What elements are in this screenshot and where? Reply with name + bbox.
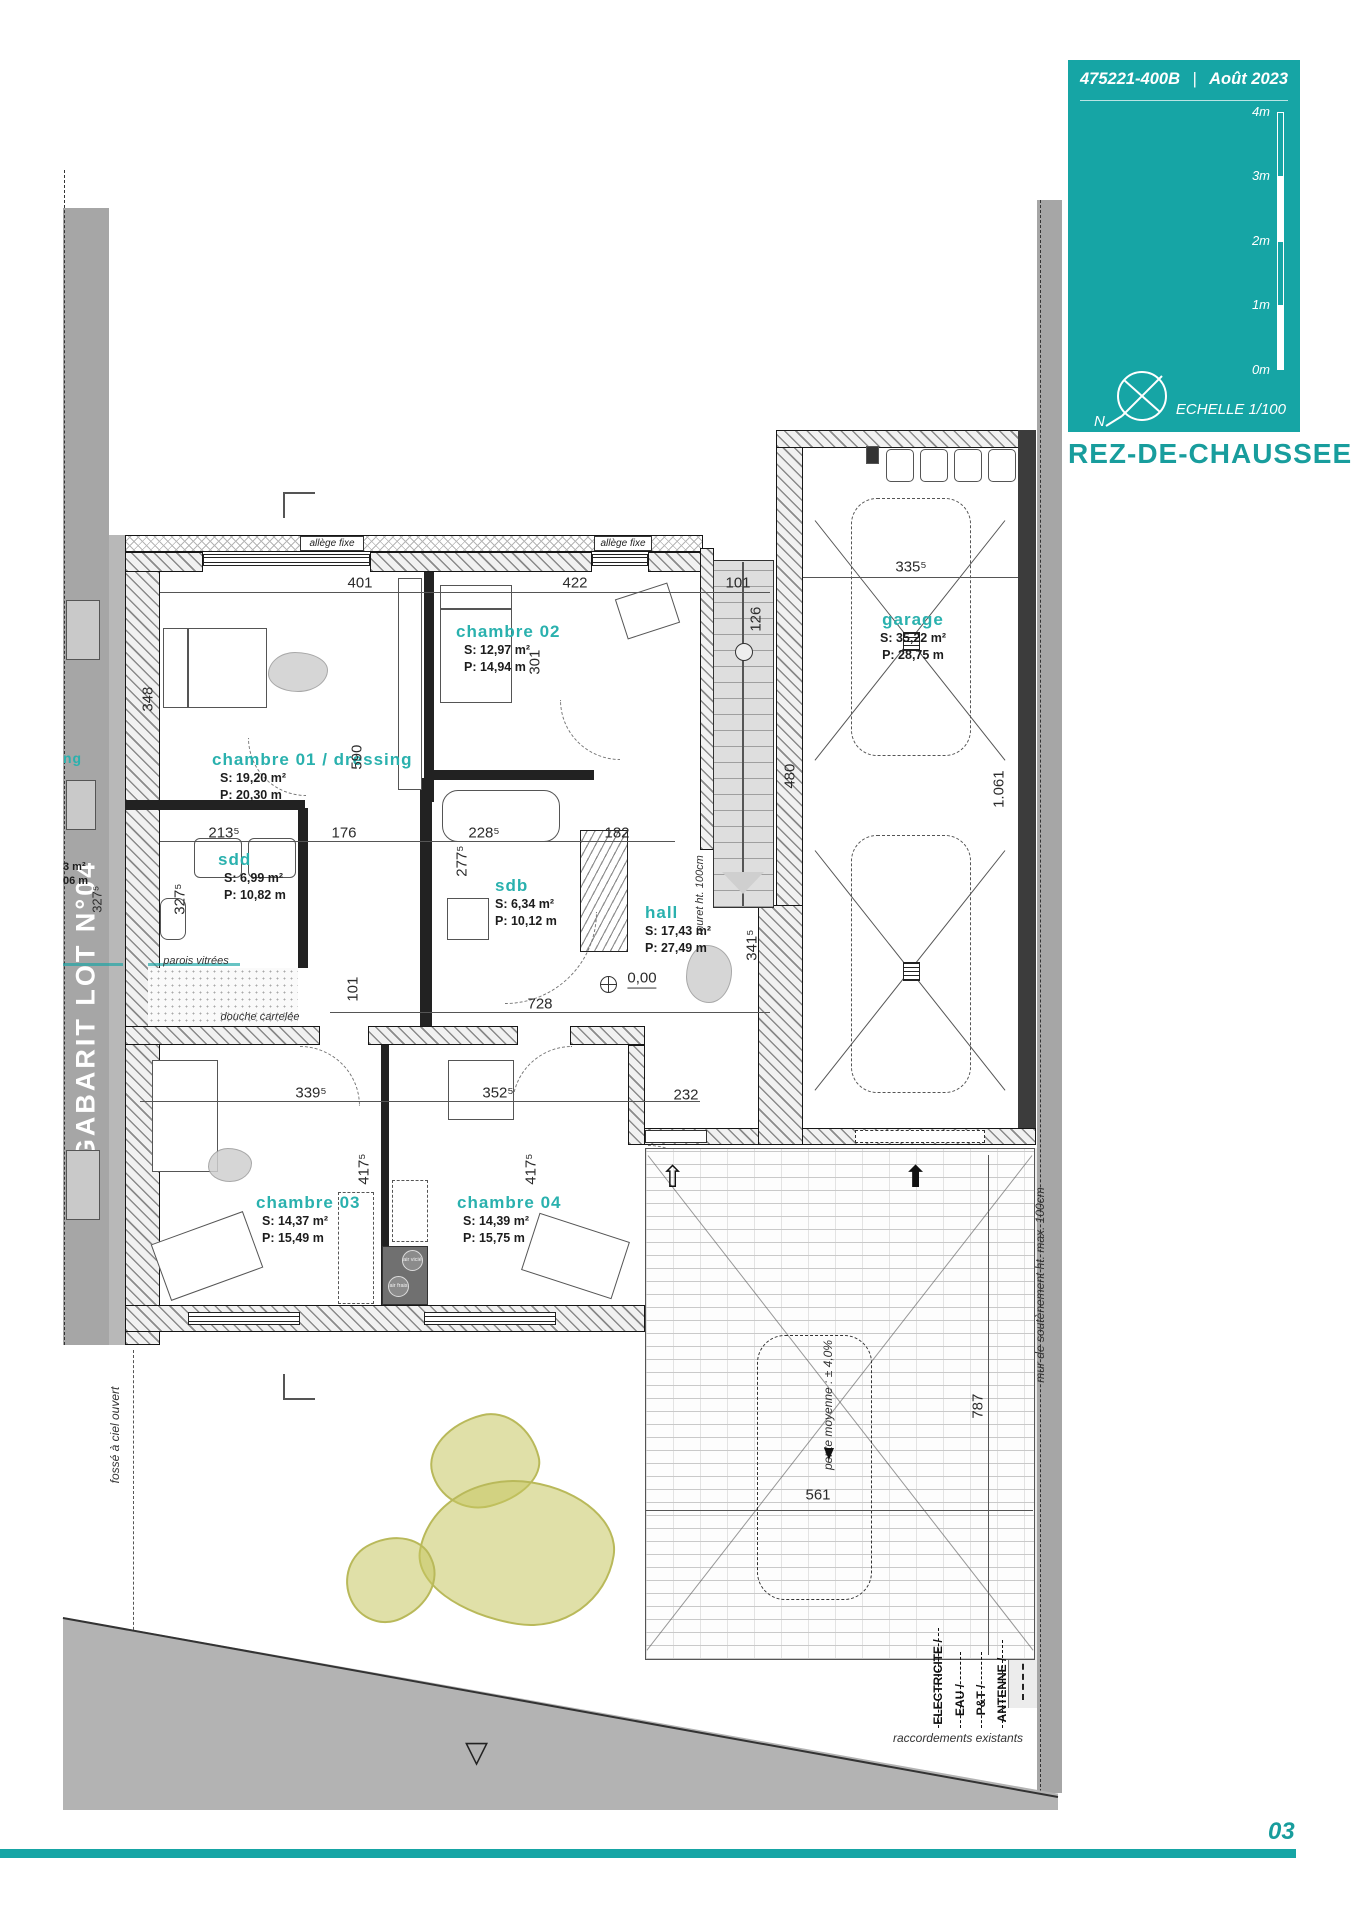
dim-232: 232 bbox=[673, 1087, 698, 1104]
header-separator: | bbox=[1192, 70, 1196, 89]
survey-mark bbox=[283, 492, 315, 494]
panel-header: 475221-400B | Août 2023 bbox=[1080, 70, 1288, 89]
doc-reference: 475221-400B bbox=[1080, 70, 1180, 89]
room-label-garage: garage S: 35,22 m² P: 28,75 m bbox=[880, 610, 946, 664]
bed-ch02-pillow-line bbox=[441, 608, 511, 610]
party-wall-left bbox=[125, 535, 160, 1345]
dim-1061: 1.061 bbox=[991, 770, 1008, 808]
room-perimeter: P: 15,49 m bbox=[256, 1230, 361, 1247]
person-figure-ch01 bbox=[268, 652, 328, 692]
garden-dash-line bbox=[133, 1350, 134, 1640]
entry-door-opening bbox=[645, 1130, 707, 1143]
svg-text:N: N bbox=[1094, 413, 1105, 430]
north-arrow-icon: N bbox=[1090, 360, 1180, 430]
title-panel: 475221-400B | Août 2023 4m 3m 2m 1m 0m N… bbox=[1068, 60, 1300, 432]
fosse-left-label: fossé à ciel ouvert bbox=[108, 1387, 122, 1484]
wall-hall-garage-low bbox=[758, 905, 803, 1145]
bed-ch03 bbox=[152, 1060, 218, 1172]
staircase-arrow bbox=[722, 872, 764, 894]
room-surface: S: 14,37 m² bbox=[256, 1213, 361, 1230]
dim-348: 348 bbox=[140, 687, 157, 712]
room-surface: S: 12,97 m² bbox=[456, 642, 561, 659]
room-surface: S: 19,20 m² bbox=[212, 770, 413, 787]
room-label-chambre03: chambre 03 S: 14,37 m² P: 15,49 m bbox=[256, 1193, 361, 1247]
parois-vitrees-label: parois vitrées bbox=[163, 955, 228, 967]
dim-401: 401 bbox=[347, 575, 372, 592]
room-label-hall: hall S: 17,43 m² P: 27,49 m bbox=[645, 903, 711, 957]
room-perimeter: P: 15,75 m bbox=[457, 1230, 562, 1247]
dim-101-hall: 101 bbox=[345, 977, 362, 1002]
wall-ch02-sdb bbox=[434, 770, 594, 780]
bathtub-sdb bbox=[442, 790, 560, 842]
utility-label-pt: P&T / bbox=[974, 1685, 988, 1716]
top-wall-segment bbox=[370, 552, 592, 572]
garage-right-wall bbox=[1018, 430, 1036, 1145]
footer-accent-bar bbox=[0, 1849, 1296, 1858]
dim-728: 728 bbox=[527, 996, 552, 1013]
wall-corridor-ch03 bbox=[125, 1026, 320, 1045]
garage-storage bbox=[886, 449, 914, 482]
washbasin-sdb bbox=[447, 898, 489, 940]
room-perimeter: P: 14,94 m bbox=[456, 659, 561, 676]
dim-480: 480 bbox=[782, 764, 799, 789]
room-surface: S: 6,34 m² bbox=[495, 896, 557, 913]
scale-label-3m: 3m bbox=[1240, 168, 1270, 183]
page-number: 03 bbox=[1268, 1818, 1295, 1846]
survey-triangle-marker: ▽ bbox=[465, 1738, 488, 1768]
staircase-post bbox=[735, 643, 753, 661]
wall-corridor-mid bbox=[368, 1026, 518, 1045]
dim-787: 787 bbox=[970, 1394, 987, 1419]
scale-label-4m: 4m bbox=[1240, 104, 1270, 119]
room-name: chambre 03 bbox=[256, 1193, 361, 1213]
car-outline-driveway bbox=[757, 1335, 872, 1600]
dim-line-561 bbox=[645, 1510, 1033, 1511]
survey-mark bbox=[283, 1374, 285, 1400]
dim-561: 561 bbox=[805, 1487, 830, 1504]
scale-segment bbox=[1277, 241, 1284, 306]
level-marker-icon bbox=[600, 976, 617, 993]
wall-ch02-stairs bbox=[700, 548, 714, 850]
room-surface: S: 17,43 m² bbox=[645, 923, 711, 940]
closet-ch04 bbox=[392, 1180, 428, 1242]
neighbor-room-partial-label: ng bbox=[63, 750, 82, 766]
staircase-rail bbox=[742, 562, 744, 906]
dim-176: 176 bbox=[331, 825, 356, 842]
dim-line-787 bbox=[988, 1155, 989, 1655]
scale-segment bbox=[1277, 306, 1284, 371]
bed2-ch03 bbox=[151, 1211, 264, 1301]
glass-partition-line-neighbor bbox=[63, 963, 123, 966]
top-wall-segment bbox=[648, 552, 703, 572]
dim-352: 352⁵ bbox=[482, 1085, 513, 1102]
window-chambre04 bbox=[424, 1312, 556, 1325]
dim-line-garage bbox=[803, 577, 1018, 578]
dim-335: 335⁵ bbox=[895, 559, 926, 576]
neighbor-furniture bbox=[66, 780, 96, 830]
floor-drain bbox=[903, 962, 920, 981]
room-label-chambre04: chambre 04 S: 14,39 m² P: 15,75 m bbox=[457, 1193, 562, 1247]
wall-ch04-terrace bbox=[628, 1045, 645, 1145]
neighbor-furniture bbox=[66, 1150, 100, 1220]
dim-422: 422 bbox=[562, 575, 587, 592]
entry-arrow-hollow: ⇧ bbox=[660, 1160, 685, 1195]
room-label-chambre02: chambre 02 S: 12,97 m² P: 14,94 m bbox=[456, 622, 561, 676]
wall-corridor-ch04 bbox=[570, 1026, 645, 1045]
dim-327-lot: 327⁵ bbox=[90, 886, 105, 913]
garage-top-wall bbox=[776, 430, 1036, 448]
scale-text: ECHELLE 1/100 bbox=[1176, 401, 1286, 418]
dim-327-sdd: 327⁵ bbox=[172, 884, 189, 915]
lot-boundary-right-line bbox=[1040, 200, 1041, 1792]
survey-mark bbox=[283, 492, 285, 518]
dim-277: 277⁵ bbox=[454, 846, 471, 877]
wall-sdb-left bbox=[420, 778, 432, 1028]
window-chambre03 bbox=[188, 1312, 300, 1325]
dim-341: 341⁵ bbox=[744, 930, 761, 961]
header-divider bbox=[1080, 100, 1288, 101]
garage-storage bbox=[988, 449, 1016, 482]
neighbor-partial-surface: 3 m² bbox=[63, 860, 86, 875]
air-vicie-vent: air vicié bbox=[402, 1250, 423, 1271]
utility-label-antenne: ANTENNE / bbox=[995, 1658, 1009, 1723]
room-label-sdb: sdb S: 6,34 m² P: 10,12 m bbox=[495, 876, 557, 930]
room-name: chambre 01 / dressing bbox=[212, 750, 413, 770]
room-perimeter: P: 10,82 m bbox=[218, 887, 286, 904]
scale-bar bbox=[1277, 112, 1284, 370]
dim-line-ch34 bbox=[140, 1101, 700, 1102]
dim-417-ch04: 417⁵ bbox=[523, 1154, 540, 1185]
garage-meter bbox=[866, 446, 879, 464]
room-perimeter: P: 27,49 m bbox=[645, 940, 711, 957]
dim-417-ch03: 417⁵ bbox=[356, 1154, 373, 1185]
room-label-sdd: sdd S: 6,99 m² P: 10,82 m bbox=[218, 850, 286, 904]
room-name: sdd bbox=[218, 850, 286, 870]
bed-ch01 bbox=[163, 628, 267, 708]
level-value: 0,00 bbox=[627, 970, 656, 989]
allege-fixe-label-1: allège fixe bbox=[300, 536, 364, 551]
neighbor-furniture bbox=[66, 600, 100, 660]
bed-ch01-pillow-line bbox=[187, 629, 189, 707]
room-surface: S: 6,99 m² bbox=[218, 870, 286, 887]
garage-arrow-solid: ⬆ bbox=[903, 1160, 928, 1195]
person-figure-ch03 bbox=[208, 1148, 252, 1182]
scale-label-0m: 0m bbox=[1240, 362, 1270, 377]
allege-fixe-label-2: allège fixe bbox=[594, 536, 652, 551]
utility-note: raccordements existants bbox=[893, 1731, 1023, 1745]
dim-101-top: 101 bbox=[725, 575, 750, 592]
doc-date: Août 2023 bbox=[1209, 70, 1288, 89]
room-name: chambre 04 bbox=[457, 1193, 562, 1213]
garage-door-opening bbox=[855, 1130, 985, 1143]
air-frais-vent: air frais bbox=[388, 1276, 409, 1297]
dim-182: 182 bbox=[604, 825, 629, 842]
wall-sdd-corridor bbox=[298, 808, 308, 968]
scale-label-1m: 1m bbox=[1240, 297, 1270, 312]
dim-126: 126 bbox=[748, 607, 765, 632]
slope-arrow bbox=[824, 1448, 834, 1460]
dim-213: 213⁵ bbox=[208, 825, 239, 842]
douche-carrelee-label: douche carrelée bbox=[221, 1011, 300, 1023]
wall-ch01-ch02 bbox=[424, 572, 434, 802]
room-surface: S: 14,39 m² bbox=[457, 1213, 562, 1230]
room-name: sdb bbox=[495, 876, 557, 896]
dim-590: 590 bbox=[349, 745, 366, 770]
utility-label-eau: EAU / bbox=[953, 1684, 967, 1716]
neighbor-partial-perimeter: 06 m bbox=[63, 874, 88, 889]
window-chambre01 bbox=[203, 554, 370, 566]
garage-storage bbox=[920, 449, 948, 482]
door-arc-ch04 bbox=[512, 1046, 572, 1106]
retaining-wall-note: mur de soutènement ht. max. 100cm bbox=[1033, 1187, 1047, 1382]
scale-label-2m: 2m bbox=[1240, 233, 1270, 248]
scale-segment bbox=[1277, 112, 1284, 177]
room-perimeter: P: 20,30 m bbox=[212, 787, 413, 804]
room-surface: S: 35,22 m² bbox=[880, 630, 946, 647]
utility-label-electricite: ELECTRICITE / bbox=[931, 1639, 945, 1724]
dim-339: 339⁵ bbox=[295, 1085, 326, 1102]
room-name: hall bbox=[645, 903, 711, 923]
survey-mark bbox=[283, 1398, 315, 1400]
room-name: chambre 02 bbox=[456, 622, 561, 642]
floor-title: REZ-DE-CHAUSSEE bbox=[1068, 438, 1351, 470]
dim-301: 301 bbox=[527, 650, 544, 675]
door-arc-ch02 bbox=[560, 700, 620, 760]
neighbor-room-area bbox=[109, 535, 125, 1345]
window-chambre02 bbox=[592, 554, 648, 566]
dim-228: 228⁵ bbox=[468, 825, 499, 842]
scale-segment bbox=[1277, 177, 1284, 242]
dim-line-top bbox=[160, 592, 770, 593]
staircase bbox=[713, 560, 774, 908]
top-wall-segment bbox=[125, 552, 203, 572]
floorplan-page: GABARIT LOT N°04 ng 3 m² 06 m 327⁵ mur d… bbox=[0, 0, 1351, 1920]
garage-storage bbox=[954, 449, 982, 482]
room-perimeter: P: 28,75 m bbox=[880, 647, 946, 664]
room-name: garage bbox=[880, 610, 946, 630]
room-label-chambre01: chambre 01 / dressing S: 19,20 m² P: 20,… bbox=[212, 750, 413, 804]
room-perimeter: P: 10,12 m bbox=[495, 913, 557, 930]
